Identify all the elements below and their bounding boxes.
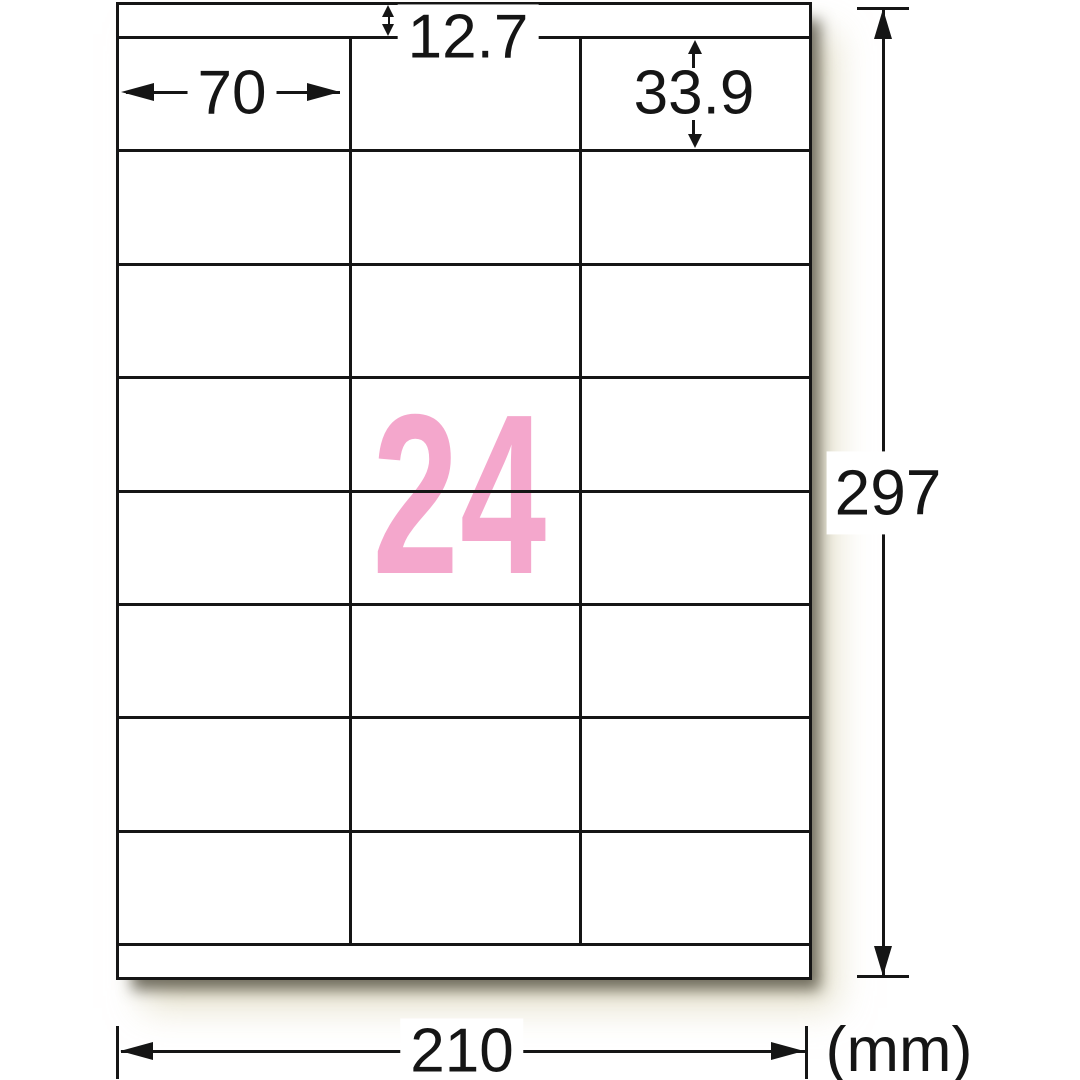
arrow-down-icon — [688, 134, 702, 148]
sheet-width-left-tick — [116, 1026, 119, 1079]
arrow-right-icon — [771, 1042, 804, 1060]
grid-row-line — [119, 716, 809, 719]
grid-row-line — [119, 149, 809, 152]
label-count: 24 — [372, 381, 547, 609]
arrow-down-icon — [874, 946, 892, 976]
grid-row-line — [119, 263, 809, 266]
unit-label: (mm) — [826, 1017, 973, 1080]
sheet-page: 24 — [116, 2, 812, 980]
dim-label-height: 33.9 — [634, 60, 755, 125]
sheet-width-right-tick — [805, 1026, 808, 1079]
arrow-down-icon — [382, 24, 394, 36]
grid-row-line — [119, 830, 809, 833]
grid-row-line — [119, 376, 809, 379]
arrow-up-icon — [688, 40, 702, 54]
grid-row-line — [119, 490, 809, 493]
arrow-left-icon — [120, 1042, 153, 1060]
label-grid: 24 — [119, 5, 809, 977]
grid-column-line — [349, 36, 352, 946]
arrow-up-icon — [382, 5, 394, 17]
dim-label-width: 70 — [188, 60, 277, 125]
arrow-right-icon — [307, 83, 340, 101]
dim-sheet-width: 210 — [400, 1018, 523, 1080]
dim-sheet-height: 297 — [827, 451, 950, 534]
grid-column-line — [579, 36, 582, 946]
grid-row-line — [119, 603, 809, 606]
label-sheet-diagram: 24 12.7 70 33.9 297 210 (mm) — [0, 0, 1080, 1080]
grid-row-line — [119, 943, 809, 946]
arrow-up-icon — [874, 9, 892, 39]
dim-top-margin: 12.7 — [398, 4, 539, 69]
arrow-left-icon — [121, 83, 154, 101]
